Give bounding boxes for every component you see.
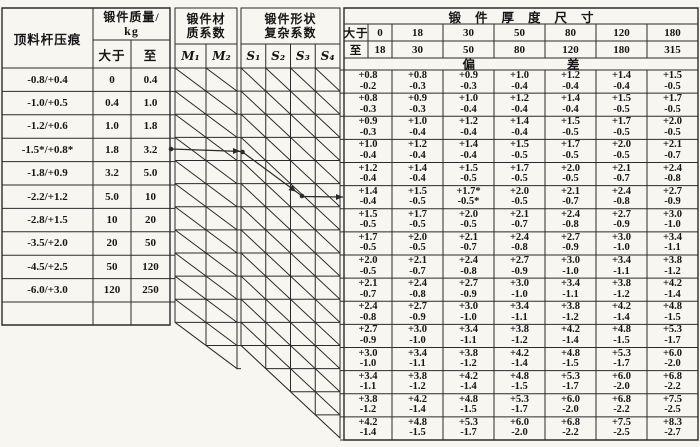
dev-cell-r3-c6-line: -0.5 xyxy=(613,128,630,139)
dev-cell-r9-c1-line: +2.0 xyxy=(358,256,377,267)
material-coefficient-header: 锻件材 质系数 xyxy=(175,8,237,44)
mass-row-4-over: 1.8 xyxy=(93,138,131,161)
dev-cell-r15-c4-line: -1.7 xyxy=(511,405,528,416)
dev-cell-r5-c1: +1.2-0.4 xyxy=(344,163,392,186)
dev-cell-r1-c6-line: -0.4 xyxy=(613,82,630,93)
dev-cell-r1-c2-line: -0.3 xyxy=(409,82,426,93)
dev-cell-r14-c4: +4.8-1.5 xyxy=(494,371,545,394)
dev-cell-r13-c7: +6.0-2.0 xyxy=(647,348,698,371)
dev-cell-r1-c2: +0.8-0.3 xyxy=(392,70,443,93)
dev-cell-r3-c7: +2.0-0.5 xyxy=(647,116,698,139)
dev-cell-r15-c7: +7.5-2.5 xyxy=(647,394,698,417)
mass-row-5-indent: -1.8/+0.9 xyxy=(2,162,93,185)
dev-cell-r15-c3-line: -1.5 xyxy=(460,405,477,416)
dev-cell-r7-c5-line: -0.8 xyxy=(562,220,579,231)
dev-cell-r8-c2: +2.0-0.5 xyxy=(392,232,443,255)
dev-cell-r5-c4-line: -0.5 xyxy=(511,174,528,185)
dev-cell-r2-c2: +0.9-0.3 xyxy=(392,93,443,116)
dev-cell-r16-c6: +7.5-2.5 xyxy=(596,417,647,440)
dev-cell-r16-c7-line: -2.7 xyxy=(664,428,681,439)
mass-row-9-indent: -4.5/+2.5 xyxy=(2,255,93,278)
dev-cell-r4-c1: +1.0-0.4 xyxy=(344,139,392,162)
dev-cell-r2-c3-line: -0.4 xyxy=(460,105,477,116)
dev-cell-r6-c1-line: -0.4 xyxy=(360,197,377,208)
dev-cell-r6-c5: +2.1-0.7 xyxy=(545,186,596,209)
thickness-over-7: 180 xyxy=(647,24,698,41)
dev-cell-r15-c1-line: -1.2 xyxy=(360,405,377,416)
mass-header: 锻件质量/ kg xyxy=(93,8,170,40)
dev-cell-r10-c6: +3.8-1.2 xyxy=(596,278,647,301)
dev-cell-r4-c5-line: -0.5 xyxy=(562,151,579,162)
dev-cell-r4-c2-line: -0.4 xyxy=(409,151,426,162)
dev-cell-r1-c4-line: +1.0 xyxy=(510,71,529,82)
dev-cell-r6-c7: +2.7-0.9 xyxy=(647,186,698,209)
dev-cell-r9-c6-line: +3.4 xyxy=(612,256,631,267)
mass-row-5-to: 5.0 xyxy=(131,162,170,185)
dev-cell-r2-c7: +1.7-0.5 xyxy=(647,93,698,116)
dev-cell-r3-c5: +1.5-0.5 xyxy=(545,116,596,139)
dev-cell-r15-c5-line: -2.0 xyxy=(562,405,579,416)
dev-cell-r3-c2-line: -0.4 xyxy=(409,128,426,139)
dev-cell-r12-c1-line: -0.9 xyxy=(360,336,377,347)
dev-cell-r9-c5: +3.0-1.0 xyxy=(545,255,596,278)
dev-cell-r2-c5-line: -0.4 xyxy=(562,105,579,116)
dev-cell-r16-c3: +5.3-1.7 xyxy=(443,417,494,440)
dev-cell-r7-c5: +2.4-0.8 xyxy=(545,209,596,232)
dev-cell-r2-c6: +1.5-0.5 xyxy=(596,93,647,116)
dev-cell-r5-c1-line: -0.4 xyxy=(360,174,377,185)
dev-cell-r2-c3: +1.0-0.4 xyxy=(443,93,494,116)
dev-cell-r14-c5: +5.3-1.7 xyxy=(545,371,596,394)
dev-cell-r4-c5: +1.7-0.5 xyxy=(545,139,596,162)
dev-cell-r1-c7-line: +1.5 xyxy=(663,71,682,82)
dev-cell-r8-c5-line: -0.9 xyxy=(562,243,579,254)
mass-row-6-to: 10 xyxy=(131,185,170,208)
mass-row-5-over: 3.2 xyxy=(93,162,131,185)
dev-cell-r2-c2-line: -0.3 xyxy=(409,105,426,116)
dev-cell-r4-c6: +2.0-0.5 xyxy=(596,139,647,162)
shape-col-label-2: S₂ xyxy=(266,44,291,68)
dev-cell-r13-c5: +4.8-1.5 xyxy=(545,348,596,371)
dev-cell-r6-c7-line: -0.9 xyxy=(664,197,681,208)
dev-cell-r5-c2-line: -0.4 xyxy=(409,174,426,185)
dev-cell-r1-c5: +1.2-0.4 xyxy=(545,70,596,93)
dev-cell-r14-c2-line: -1.2 xyxy=(409,382,426,393)
dev-cell-r8-c3-line: -0.7 xyxy=(460,243,477,254)
dev-cell-r2-c7-line: -0.5 xyxy=(664,105,681,116)
mass-row-6-over: 5.0 xyxy=(93,185,131,208)
dev-cell-r6-c3: +1.7*-0.5* xyxy=(443,186,494,209)
dev-cell-r16-c2: +4.8-1.5 xyxy=(392,417,443,440)
dev-cell-r5-c4: +1.7-0.5 xyxy=(494,163,545,186)
dev-cell-r9-c1-line: -0.5 xyxy=(360,267,377,278)
dev-cell-r8-c5: +2.7-0.9 xyxy=(545,232,596,255)
dev-cell-r2-c6-line: -0.5 xyxy=(613,105,630,116)
dev-cell-r7-c4: +2.1-0.7 xyxy=(494,209,545,232)
dev-cell-r15-c5: +6.0-2.0 xyxy=(545,394,596,417)
dev-cell-r8-c2-line: -0.5 xyxy=(409,243,426,254)
dev-cell-r7-c2-line: -0.5 xyxy=(409,220,426,231)
mass-row-4-to: 3.2 xyxy=(131,138,170,161)
dev-cell-r14-c5-line: -1.7 xyxy=(562,382,579,393)
dev-cell-r6-c4-line: -0.5 xyxy=(511,197,528,208)
dev-cell-r4-c3: +1.4-0.4 xyxy=(443,139,494,162)
dev-cell-r5-c2: +1.4-0.4 xyxy=(392,163,443,186)
mass-header-line1: 锻件质量/ xyxy=(103,10,159,24)
dev-cell-r9-c4-line: -0.9 xyxy=(511,267,528,278)
dev-cell-r11-c3: +3.0-1.0 xyxy=(443,301,494,324)
dev-cell-r10-c2: +2.4-0.8 xyxy=(392,278,443,301)
dev-cell-r12-c4: +3.8-1.2 xyxy=(494,324,545,347)
dev-cell-r11-c4-line: -1.1 xyxy=(511,313,528,324)
dev-cell-r14-c7-line: -2.2 xyxy=(664,382,681,393)
dev-cell-r16-c3-line: -1.7 xyxy=(460,428,477,439)
thickness-title: 锻件厚度尺寸 xyxy=(344,8,698,24)
dev-cell-r12-c6: +4.8-1.5 xyxy=(596,324,647,347)
dev-cell-r2-c1: +0.8-0.3 xyxy=(344,93,392,116)
dev-cell-r3-c4-line: -0.4 xyxy=(511,128,528,139)
dev-cell-r8-c7: +3.4-1.1 xyxy=(647,232,698,255)
mass-header-line2: kg xyxy=(124,24,139,38)
dev-cell-r7-c2: +1.7-0.5 xyxy=(392,209,443,232)
dev-cell-r9-c2-line: -0.7 xyxy=(409,267,426,278)
dev-cell-r8-c1: +1.7-0.5 xyxy=(344,232,392,255)
dev-cell-r4-c7: +2.1-0.7 xyxy=(647,139,698,162)
dev-cell-r3-c3: +1.2-0.4 xyxy=(443,116,494,139)
dev-cell-r8-c4: +2.4-0.8 xyxy=(494,232,545,255)
dev-cell-r10-c6-line: -1.2 xyxy=(613,290,630,301)
shape-complexity-header: 锻件形状 复杂系数 xyxy=(241,8,340,44)
dev-cell-r14-c1: +3.4-1.1 xyxy=(344,371,392,394)
shape-col-label-4: S₄ xyxy=(315,44,340,68)
dev-cell-r10-c3: +2.7-0.9 xyxy=(443,278,494,301)
dev-cell-r4-c1-line: -0.4 xyxy=(360,151,377,162)
mass-row-7-indent: -2.8/+1.5 xyxy=(2,208,93,231)
thickness-to-4: 80 xyxy=(494,41,545,58)
mass-row-8-to: 50 xyxy=(131,232,170,255)
dev-cell-r11-c5: +3.8-1.2 xyxy=(545,301,596,324)
dev-cell-r13-c4-line: -1.4 xyxy=(511,359,528,370)
dev-cell-r10-c1-line: -0.7 xyxy=(360,290,377,301)
dev-cell-r11-c7-line: -1.5 xyxy=(664,313,681,324)
dev-cell-r12-c6-line: -1.5 xyxy=(613,336,630,347)
dev-cell-r9-c6-line: -1.1 xyxy=(613,267,630,278)
dev-cell-r1-c3-line: +0.9 xyxy=(459,71,478,82)
dev-cell-r6-c5-line: -0.7 xyxy=(562,197,579,208)
dev-cell-r5-c5: +2.0-0.5 xyxy=(545,163,596,186)
mass-row-3-over: 1.0 xyxy=(93,115,131,138)
thickness-to-3: 50 xyxy=(443,41,494,58)
mass-to-header: 至 xyxy=(131,40,170,68)
dev-cell-r1-c1-line: -0.2 xyxy=(360,82,377,93)
dev-cell-r16-c5: +6.8-2.2 xyxy=(545,417,596,440)
thickness-over-1: 0 xyxy=(368,24,392,41)
dev-cell-r8-c6: +3.0-1.0 xyxy=(596,232,647,255)
thickness-over-4: 50 xyxy=(494,24,545,41)
thickness-to-1: 18 xyxy=(368,41,392,58)
dev-cell-r7-c1: +1.5-0.5 xyxy=(344,209,392,232)
dev-cell-r3-c2: +1.0-0.4 xyxy=(392,116,443,139)
dev-cell-r16-c4-line: -2.0 xyxy=(511,428,528,439)
mass-row-10-to: 250 xyxy=(131,279,170,302)
dev-cell-r1-c7-line: -0.5 xyxy=(664,82,681,93)
dev-cell-r10-c2-line: -0.8 xyxy=(409,290,426,301)
thickness-over-2: 18 xyxy=(392,24,443,41)
mass-row-4-indent: -1.5*/+0.8* xyxy=(2,138,93,161)
thickness-over-6: 120 xyxy=(596,24,647,41)
dev-cell-r14-c1-line: -1.1 xyxy=(360,382,377,393)
mass-row-9-to: 120 xyxy=(131,255,170,278)
dev-cell-r13-c6-line: -1.7 xyxy=(613,359,630,370)
dev-cell-r8-c1-line: -0.5 xyxy=(360,243,377,254)
mass-over-header: 大于 xyxy=(93,40,131,68)
dev-cell-r1-c5-line: -0.4 xyxy=(562,82,579,93)
dev-cell-r16-c1-line: -1.4 xyxy=(360,428,377,439)
mass-row-8-over: 20 xyxy=(93,232,131,255)
dev-cell-r12-c4-line: -1.2 xyxy=(511,336,528,347)
dev-cell-r10-c7-line: -1.4 xyxy=(664,290,681,301)
shape-col-label-1: S₁ xyxy=(241,44,266,68)
dev-cell-r15-c3: +4.8-1.5 xyxy=(443,394,494,417)
dev-cell-r4-c2: +1.2-0.4 xyxy=(392,139,443,162)
dev-cell-r14-c7: +6.8-2.2 xyxy=(647,371,698,394)
mass-row-3-indent: -1.2/+0.6 xyxy=(2,115,93,138)
dev-cell-r11-c7: +4.8-1.5 xyxy=(647,301,698,324)
dev-cell-r9-c7-line: +3.8 xyxy=(663,256,682,267)
dev-cell-r9-c1: +2.0-0.5 xyxy=(344,255,392,278)
dev-cell-r13-c1-line: -1.0 xyxy=(360,359,377,370)
dev-cell-r3-c6: +1.7-0.5 xyxy=(596,116,647,139)
dev-cell-r3-c7-line: -0.5 xyxy=(664,128,681,139)
mass-row-7-to: 20 xyxy=(131,208,170,231)
dev-cell-r6-c1: +1.4-0.4 xyxy=(344,186,392,209)
dev-cell-r3-c3-line: -0.4 xyxy=(460,128,477,139)
mass-row-10-over: 120 xyxy=(93,279,131,302)
shape-header-line1: 锻件形状 xyxy=(264,12,316,26)
dev-cell-r16-c2-line: -1.5 xyxy=(409,428,426,439)
dev-cell-r13-c1: +3.0-1.0 xyxy=(344,348,392,371)
dev-cell-r12-c3: +3.4-1.1 xyxy=(443,324,494,347)
dev-cell-r10-c1: +2.1-0.7 xyxy=(344,278,392,301)
thickness-over-5: 80 xyxy=(545,24,596,41)
dev-cell-r14-c6: +6.0-2.0 xyxy=(596,371,647,394)
dev-cell-r9-c2-line: +2.1 xyxy=(408,256,427,267)
dev-cell-r15-c2: +4.2-1.4 xyxy=(392,394,443,417)
dev-cell-r14-c3-line: -1.4 xyxy=(460,382,477,393)
dev-cell-r6-c2-line: -0.5 xyxy=(409,197,426,208)
dev-cell-r7-c3: +2.0-0.5 xyxy=(443,209,494,232)
dev-cell-r1-c7: +1.5-0.5 xyxy=(647,70,698,93)
dev-cell-r16-c5-line: -2.2 xyxy=(562,428,579,439)
thickness-over-3: 30 xyxy=(443,24,494,41)
dev-cell-r4-c4: +1.5-0.5 xyxy=(494,139,545,162)
dev-cell-r12-c1: +2.7-0.9 xyxy=(344,324,392,347)
dev-cell-r5-c6: +2.1-0.7 xyxy=(596,163,647,186)
thickness-over-label: 大于 xyxy=(344,24,368,41)
dev-cell-r1-c3-line: -0.3 xyxy=(460,82,477,93)
mass-row-9-over: 50 xyxy=(93,255,131,278)
dev-cell-r6-c4: +2.0-0.5 xyxy=(494,186,545,209)
dev-cell-r10-c4-line: -1.0 xyxy=(511,290,528,301)
dev-cell-r16-c4: +6.0-2.0 xyxy=(494,417,545,440)
dev-cell-r12-c7: +5.3-1.7 xyxy=(647,324,698,347)
dev-cell-r1-c5-line: +1.2 xyxy=(561,71,580,82)
thickness-to-6: 180 xyxy=(596,41,647,58)
dev-cell-r15-c7-line: -2.5 xyxy=(664,405,681,416)
dev-cell-r14-c3: +4.2-1.4 xyxy=(443,371,494,394)
dev-cell-r10-c5: +3.4-1.1 xyxy=(545,278,596,301)
dev-cell-r4-c6-line: -0.5 xyxy=(613,151,630,162)
material-grid xyxy=(175,45,237,392)
dev-cell-r10-c7: +4.2-1.4 xyxy=(647,278,698,301)
dev-cell-r3-c4: +1.4-0.4 xyxy=(494,116,545,139)
dev-cell-r9-c7-line: -1.2 xyxy=(664,267,681,278)
material-col-label-2: M₂ xyxy=(206,44,237,68)
mass-row-2-to: 1.0 xyxy=(131,91,170,114)
dev-cell-r13-c2: +3.4-1.1 xyxy=(392,348,443,371)
dev-cell-r14-c6-line: -2.0 xyxy=(613,382,630,393)
dev-cell-r11-c3-line: -1.0 xyxy=(460,313,477,324)
mass-row-2-indent: -1.0/+0.5 xyxy=(2,91,93,114)
mass-row-2-over: 0.4 xyxy=(93,91,131,114)
dev-cell-r1-c4-line: -0.4 xyxy=(511,82,528,93)
dev-cell-r12-c5-line: -1.4 xyxy=(562,336,579,347)
dev-cell-r13-c2-line: -1.1 xyxy=(409,359,426,370)
deviation-title: 偏差 xyxy=(344,56,698,70)
dev-cell-r13-c5-line: -1.5 xyxy=(562,359,579,370)
dev-cell-r6-c2: +1.5-0.5 xyxy=(392,186,443,209)
dev-cell-r9-c6: +3.4-1.1 xyxy=(596,255,647,278)
dev-cell-r7-c6-line: -0.9 xyxy=(613,220,630,231)
dev-cell-r11-c6-line: -1.4 xyxy=(613,313,630,324)
dev-cell-r4-c7-line: -0.7 xyxy=(664,151,681,162)
dev-cell-r12-c3-line: -1.1 xyxy=(460,336,477,347)
dev-cell-r1-c4: +1.0-0.4 xyxy=(494,70,545,93)
dev-cell-r11-c1: +2.4-0.8 xyxy=(344,301,392,324)
dev-cell-r13-c4: +4.2-1.4 xyxy=(494,348,545,371)
dev-cell-r3-c5-line: -0.5 xyxy=(562,128,579,139)
material-header-line2: 质系数 xyxy=(186,26,225,40)
dev-cell-r1-c6: +1.4-0.4 xyxy=(596,70,647,93)
thickness-to-5: 120 xyxy=(545,41,596,58)
mass-row-8-indent: -3.5/+2.0 xyxy=(2,232,93,255)
ejector-indent-header: 顶料杆压痕 xyxy=(2,8,93,68)
dev-cell-r5-c6-line: -0.7 xyxy=(613,174,630,185)
mass-row-6-indent: -2.2/+1.2 xyxy=(2,185,93,208)
dev-cell-r8-c7-line: -1.1 xyxy=(664,243,681,254)
dev-cell-r7-c3-line: -0.5 xyxy=(460,220,477,231)
forging-tolerance-table-page: 顶料杆压痕 锻件质量/ kg 大于 至 锻件材 质系数 锻件形状 复杂系数 锻件… xyxy=(0,0,700,447)
dev-cell-r9-c5-line: +3.0 xyxy=(561,256,580,267)
dev-cell-r3-c1: +0.9-0.3 xyxy=(344,116,392,139)
dev-cell-r7-c6: +2.7-0.9 xyxy=(596,209,647,232)
dev-cell-r12-c7-line: -1.7 xyxy=(664,336,681,347)
dev-cell-r2-c1-line: -0.3 xyxy=(360,105,377,116)
dev-cell-r10-c4: +3.0-1.0 xyxy=(494,278,545,301)
dev-cell-r3-c1-line: -0.3 xyxy=(360,128,377,139)
dev-cell-r16-c6-line: -2.5 xyxy=(613,428,630,439)
dev-cell-r15-c6-line: -2.2 xyxy=(613,405,630,416)
dev-cell-r2-c4-line: -0.4 xyxy=(511,105,528,116)
dev-cell-r15-c4: +5.3-1.7 xyxy=(494,394,545,417)
dev-cell-r5-c7-line: -0.8 xyxy=(664,174,681,185)
dev-cell-r2-c4: +1.2-0.4 xyxy=(494,93,545,116)
dev-cell-r7-c4-line: -0.7 xyxy=(511,220,528,231)
dev-cell-r11-c6: +4.2-1.4 xyxy=(596,301,647,324)
thickness-to-2: 30 xyxy=(392,41,443,58)
dev-cell-r16-c1: +4.2-1.4 xyxy=(344,417,392,440)
dev-cell-r9-c4: +2.7-0.9 xyxy=(494,255,545,278)
dev-cell-r1-c2-line: +0.8 xyxy=(408,71,427,82)
dev-cell-r12-c2: +3.0-1.0 xyxy=(392,324,443,347)
dev-cell-r6-c6-line: -0.8 xyxy=(613,197,630,208)
dev-cell-r13-c6: +5.3-1.7 xyxy=(596,348,647,371)
dev-cell-r7-c1-line: -0.5 xyxy=(360,220,377,231)
dev-cell-r1-c3: +0.9-0.3 xyxy=(443,70,494,93)
dev-cell-r7-c7: +3.0-1.0 xyxy=(647,209,698,232)
mass-row-1-indent: -0.8/+0.4 xyxy=(2,68,93,91)
dev-cell-r1-c6-line: +1.4 xyxy=(612,71,631,82)
dev-cell-r15-c2-line: -1.4 xyxy=(409,405,426,416)
mass-row-3-to: 1.8 xyxy=(131,115,170,138)
dev-cell-r4-c3-line: -0.4 xyxy=(460,151,477,162)
material-header-line1: 锻件材 xyxy=(186,12,225,26)
dev-cell-r1-c1: +0.8-0.2 xyxy=(344,70,392,93)
dev-cell-r15-c6: +6.8-2.2 xyxy=(596,394,647,417)
dev-cell-r11-c2-line: -0.9 xyxy=(409,313,426,324)
dev-cell-r16-c7: +8.3-2.7 xyxy=(647,417,698,440)
example-path xyxy=(169,147,343,200)
dev-cell-r6-c3-line: -0.5* xyxy=(458,197,480,208)
shape-header-line2: 复杂系数 xyxy=(264,26,316,40)
dev-cell-r1-c1-line: +0.8 xyxy=(358,71,377,82)
dev-cell-r13-c3-line: -1.2 xyxy=(460,359,477,370)
dev-cell-r10-c3-line: -0.9 xyxy=(460,290,477,301)
dev-cell-r15-c1: +3.8-1.2 xyxy=(344,394,392,417)
dev-cell-r11-c4: +3.4-1.1 xyxy=(494,301,545,324)
mass-row-1-over: 0 xyxy=(93,68,131,91)
dev-cell-r6-c6: +2.4-0.8 xyxy=(596,186,647,209)
dev-cell-r9-c5-line: -1.0 xyxy=(562,267,579,278)
dev-cell-r5-c3-line: -0.5 xyxy=(460,174,477,185)
dev-cell-r9-c4-line: +2.7 xyxy=(510,256,529,267)
dev-cell-r12-c5: +4.2-1.4 xyxy=(545,324,596,347)
dev-cell-r12-c2-line: -1.0 xyxy=(409,336,426,347)
dev-cell-r5-c5-line: -0.5 xyxy=(562,174,579,185)
dev-cell-r9-c3-line: +2.4 xyxy=(459,256,478,267)
mass-row-7-over: 10 xyxy=(93,208,131,231)
mass-row-1-to: 0.4 xyxy=(131,68,170,91)
dev-cell-r4-c4-line: -0.5 xyxy=(511,151,528,162)
dev-cell-r9-c2: +2.1-0.7 xyxy=(392,255,443,278)
dev-cell-r2-c5: +1.4-0.4 xyxy=(545,93,596,116)
dev-cell-r8-c3: +2.1-0.7 xyxy=(443,232,494,255)
dev-cell-r7-c7-line: -1.0 xyxy=(664,220,681,231)
dev-cell-r9-c7: +3.8-1.2 xyxy=(647,255,698,278)
dev-cell-r5-c7: +2.4-0.8 xyxy=(647,163,698,186)
dev-cell-r9-c3: +2.4-0.8 xyxy=(443,255,494,278)
shape-col-label-3: S₃ xyxy=(291,44,316,68)
dev-cell-r14-c4-line: -1.5 xyxy=(511,382,528,393)
dev-cell-r14-c2: +3.8-1.2 xyxy=(392,371,443,394)
thickness-to-7: 315 xyxy=(647,41,698,58)
dev-cell-r8-c6-line: -1.0 xyxy=(613,243,630,254)
gap-ticks xyxy=(170,68,344,440)
dev-cell-r11-c1-line: -0.8 xyxy=(360,313,377,324)
material-col-label-1: M₁ xyxy=(175,44,206,68)
dev-cell-r8-c4-line: -0.8 xyxy=(511,243,528,254)
dev-cell-r13-c7-line: -2.0 xyxy=(664,359,681,370)
